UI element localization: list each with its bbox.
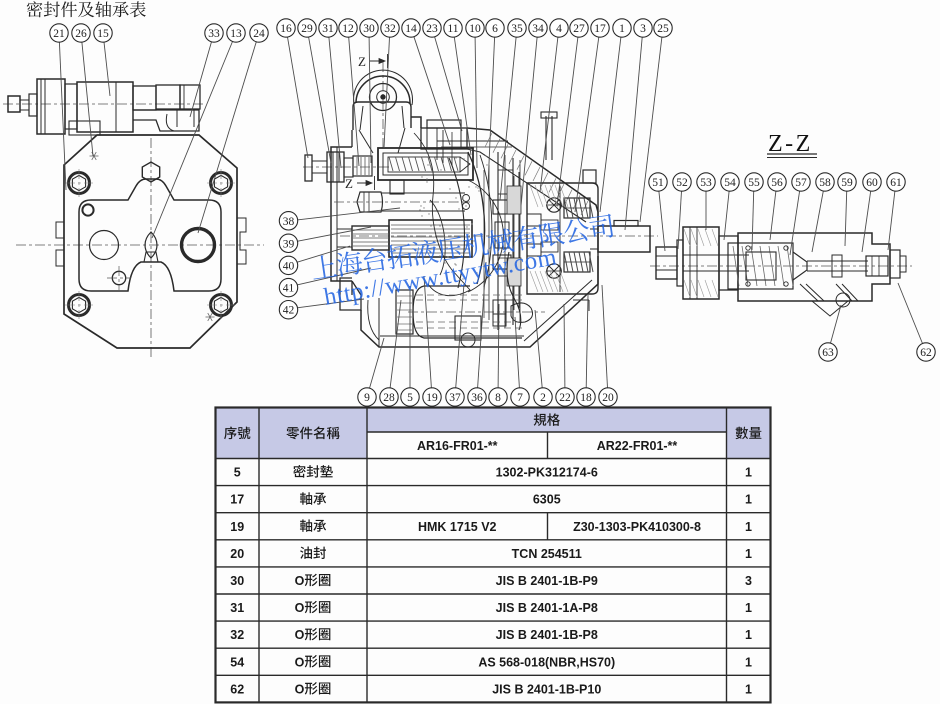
svg-text:HMK 1715 V2: HMK 1715 V2 [418,520,497,534]
svg-text:1: 1 [745,547,752,561]
svg-text:20: 20 [602,392,614,404]
svg-text:Z: Z [345,176,353,191]
svg-text:31: 31 [322,23,334,35]
svg-text:39: 39 [283,238,295,250]
svg-text:1: 1 [745,601,752,615]
svg-text:Z30-1303-PK410300-8: Z30-1303-PK410300-8 [573,520,701,534]
svg-text:12: 12 [342,23,354,35]
svg-text:5: 5 [407,392,413,404]
svg-text:62: 62 [920,347,932,359]
svg-text:6305: 6305 [533,493,561,507]
svg-text:O: O [295,601,305,615]
svg-text:1: 1 [745,682,752,696]
svg-text:25: 25 [657,23,669,35]
svg-text:8: 8 [495,392,501,404]
svg-text:30: 30 [363,23,375,35]
svg-text:JIS B 2401-1A-P8: JIS B 2401-1A-P8 [496,601,598,615]
svg-text:30: 30 [230,574,244,588]
svg-text:17: 17 [594,23,606,35]
svg-text:11: 11 [447,23,458,35]
svg-text:1: 1 [619,23,625,35]
svg-text:36: 36 [471,392,483,404]
svg-text:Z: Z [358,54,366,69]
svg-text:57: 57 [795,177,807,189]
svg-text:1302-PK312174-6: 1302-PK312174-6 [496,466,598,480]
svg-text:23: 23 [426,23,438,35]
svg-text:O: O [295,655,305,669]
svg-text:26: 26 [75,28,87,40]
svg-text:42: 42 [283,305,295,317]
svg-text:5: 5 [234,466,241,480]
svg-text:Z-Z: Z-Z [768,131,813,157]
svg-text:1: 1 [745,466,752,480]
svg-text:13: 13 [230,28,242,40]
svg-text:56: 56 [771,177,783,189]
svg-text:62: 62 [230,682,244,696]
svg-text:54: 54 [230,655,244,669]
svg-text:1: 1 [745,655,752,669]
svg-text:58: 58 [819,177,831,189]
svg-text:AR16-FR01-**: AR16-FR01-** [417,439,498,453]
svg-text:41: 41 [283,283,295,295]
svg-text:3: 3 [745,574,752,588]
svg-text:52: 52 [676,177,688,189]
svg-text:61: 61 [890,177,902,189]
svg-text:55: 55 [748,177,760,189]
svg-text:19: 19 [426,392,438,404]
svg-text:AR22-FR01-**: AR22-FR01-** [597,439,678,453]
svg-text:54: 54 [724,177,736,189]
svg-text:28: 28 [383,392,395,404]
svg-text:O: O [295,682,305,696]
svg-text:27: 27 [573,23,585,35]
svg-text:AS 568-018(NBR,HS70): AS 568-018(NBR,HS70) [478,655,615,669]
svg-text:1: 1 [745,493,752,507]
svg-text:2: 2 [540,392,546,404]
svg-text:38: 38 [283,216,295,228]
svg-text:JIS B 2401-1B-P8: JIS B 2401-1B-P8 [496,628,598,642]
svg-text:60: 60 [866,177,878,189]
svg-text:17: 17 [230,493,244,507]
svg-text:40: 40 [283,260,295,272]
svg-text:16: 16 [280,23,292,35]
svg-text:21: 21 [53,28,65,40]
svg-text:18: 18 [580,392,592,404]
svg-text:31: 31 [230,601,244,615]
svg-text:JIS B 2401-1B-P10: JIS B 2401-1B-P10 [492,682,601,696]
svg-text:59: 59 [841,177,853,189]
svg-text:O: O [295,628,305,642]
svg-text:34: 34 [532,23,544,35]
svg-text:19: 19 [230,520,244,534]
svg-text:O: O [295,574,305,588]
svg-text:TCN 254511: TCN 254511 [512,547,582,561]
svg-text:35: 35 [511,23,523,35]
svg-text:53: 53 [700,177,712,189]
svg-text:37: 37 [449,392,461,404]
svg-text:1: 1 [745,520,752,534]
svg-text:7: 7 [517,392,523,404]
svg-text:1: 1 [745,628,752,642]
svg-text:32: 32 [230,628,244,642]
svg-text:29: 29 [301,23,313,35]
svg-text:20: 20 [230,547,244,561]
svg-text:32: 32 [384,23,396,35]
svg-text:22: 22 [559,392,571,404]
svg-text:51: 51 [652,177,664,189]
svg-text:63: 63 [822,347,834,359]
svg-text:4: 4 [556,23,562,35]
svg-text:6: 6 [492,23,498,35]
svg-text:3: 3 [640,23,646,35]
svg-text:14: 14 [405,23,417,35]
svg-text:JIS B 2401-1B-P9: JIS B 2401-1B-P9 [496,574,598,588]
svg-text:24: 24 [253,28,265,40]
svg-text:33: 33 [208,28,220,40]
svg-text:10: 10 [469,23,481,35]
svg-text:15: 15 [97,28,109,40]
svg-text:9: 9 [364,392,370,404]
